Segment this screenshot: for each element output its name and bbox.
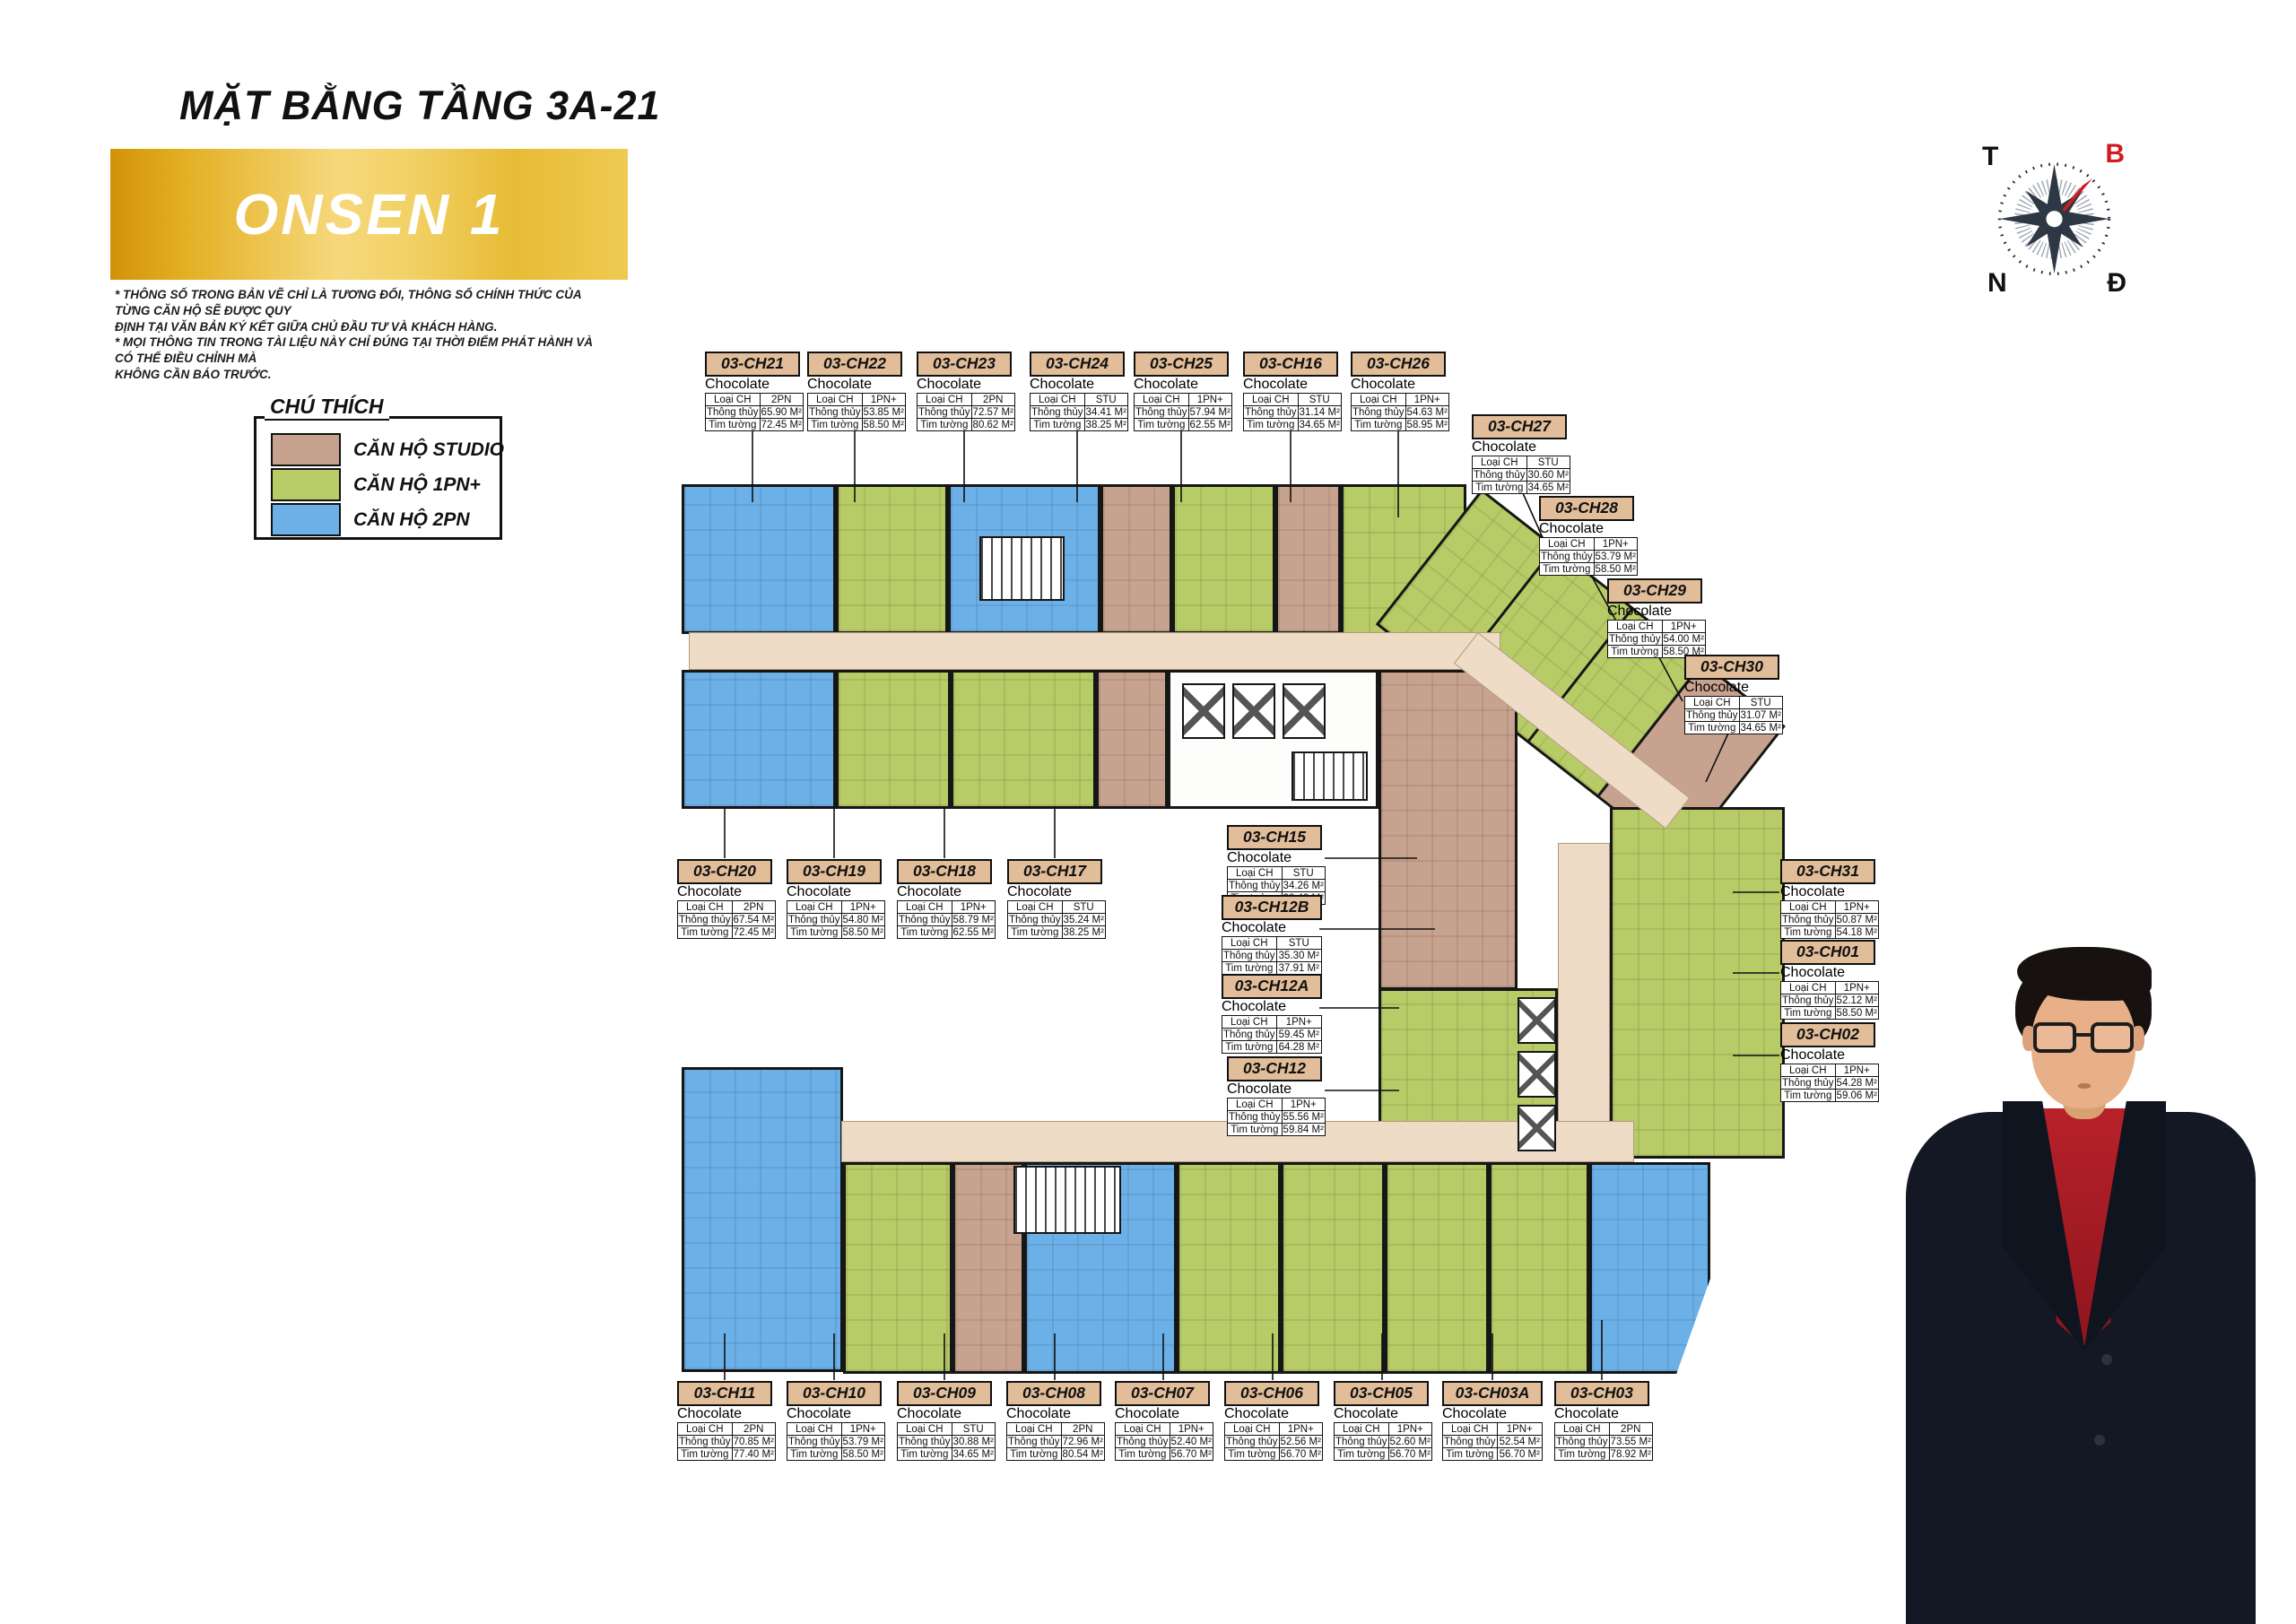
- unit-net-value: 52.56 M²: [1279, 1436, 1322, 1448]
- unit-type-label: Loại CH: [1222, 1016, 1277, 1029]
- unit-gross-value: 58.50 M²: [1594, 563, 1637, 576]
- unit-net-label: Thông thủy: [678, 914, 733, 926]
- unit-net-value: 52.12 M²: [1835, 994, 1878, 1007]
- unit-gross-label: Tim tường: [1608, 646, 1663, 658]
- unit-net-value: 54.28 M²: [1835, 1077, 1878, 1090]
- unit-gross-label: Tim tường: [1228, 1124, 1283, 1136]
- unit-code: 03-CH12A: [1222, 974, 1322, 999]
- unit-code: 03-CH28: [1539, 496, 1634, 521]
- unit-net-value: 72.96 M²: [1061, 1436, 1104, 1448]
- unit-net-value: 54.63 M²: [1405, 406, 1448, 419]
- unit-card-03-CH27: 03-CH27 Chocolate Loại CH STU Thông thủy…: [1472, 414, 1567, 494]
- unit-gross-value: 59.06 M²: [1835, 1090, 1878, 1102]
- unit-code: 03-CH10: [787, 1381, 882, 1406]
- unit-type-value: STU: [1282, 867, 1325, 880]
- unit-type-label: Loại CH: [1244, 394, 1299, 406]
- unit-card-03-CH03A: 03-CH03A Chocolate Loại CH 1PN+ Thông th…: [1442, 1381, 1543, 1461]
- unit-net-value: 53.79 M²: [1594, 551, 1637, 563]
- unit-card-03-CH24: 03-CH24 Chocolate Loại CH STU Thông thủy…: [1030, 352, 1125, 431]
- unit-gross-label: Tim tường: [1222, 962, 1277, 975]
- unit-gross-label: Tim tường: [918, 419, 972, 431]
- unit-info-table: Loại CH 1PN+ Thông thủy 54.63 M² Tim tườ…: [1351, 393, 1449, 431]
- unit-info-table: Loại CH 1PN+ Thông thủy 57.94 M² Tim tườ…: [1134, 393, 1232, 431]
- unit-net-label: Thông thủy: [1608, 633, 1663, 646]
- unit-gross-value: 62.55 M²: [952, 926, 995, 939]
- unit-code: 03-CH31: [1780, 859, 1875, 884]
- unit-net-label: Thông thủy: [808, 406, 863, 419]
- unit-net-value: 31.14 M²: [1298, 406, 1341, 419]
- unit-type-label: Loại CH: [1225, 1423, 1280, 1436]
- unit-net-value: 35.30 M²: [1276, 950, 1321, 962]
- unit-type-value: 1PN+: [1405, 394, 1448, 406]
- unit-net-value: 53.79 M²: [841, 1436, 884, 1448]
- unit-type-value: 1PN+: [1188, 394, 1231, 406]
- unit-info-table: Loại CH STU Thông thủy 35.24 M² Tim tườn…: [1007, 900, 1106, 939]
- unit-net-value: 73.55 M²: [1609, 1436, 1652, 1448]
- unit-info-table: Loại CH 1PN+ Thông thủy 59.45 M² Tim tườ…: [1222, 1015, 1322, 1054]
- unit-gross-label: Tim tường: [1555, 1448, 1610, 1461]
- unit-gross-value: 80.62 M²: [971, 419, 1014, 431]
- unit-gross-label: Tim tường: [1116, 1448, 1170, 1461]
- unit-gross-value: 56.70 M²: [1170, 1448, 1213, 1461]
- unit-card-03-CH29: 03-CH29 Chocolate Loại CH 1PN+ Thông thủ…: [1607, 578, 1702, 658]
- unit-type-label: Loại CH: [678, 901, 733, 914]
- unit-code: 03-CH21: [705, 352, 800, 377]
- unit-type-label: Loại CH: [1335, 1423, 1389, 1436]
- unit-card-03-CH08: 03-CH08 Chocolate Loại CH 2PN Thông thủy…: [1006, 1381, 1101, 1461]
- unit-gross-label: Tim tường: [1244, 419, 1299, 431]
- unit-code: 03-CH19: [787, 859, 882, 884]
- unit-gross-value: 34.65 M²: [1298, 419, 1341, 431]
- unit-card-03-CH06: 03-CH06 Chocolate Loại CH 1PN+ Thông thủ…: [1224, 1381, 1319, 1461]
- unit-card-03-CH23: 03-CH23 Chocolate Loại CH 2PN Thông thủy…: [917, 352, 1012, 431]
- unit-net-label: Thông thủy: [1008, 914, 1063, 926]
- unit-info-table: Loại CH 1PN+ Thông thủy 52.40 M² Tim tườ…: [1115, 1422, 1213, 1461]
- unit-net-label: Thông thủy: [1244, 406, 1299, 419]
- unit-type-label: Loại CH: [1685, 697, 1740, 709]
- unit-type-label: Loại CH: [898, 1423, 952, 1436]
- unit-type-value: 2PN: [760, 394, 803, 406]
- unit-gross-value: 37.91 M²: [1276, 962, 1321, 975]
- unit-gross-label: Tim tường: [1781, 926, 1836, 939]
- unit-code: 03-CH23: [917, 352, 1012, 377]
- unit-type-value: 1PN+: [862, 394, 905, 406]
- unit-net-label: Thông thủy: [706, 406, 761, 419]
- unit-code: 03-CH15: [1227, 825, 1322, 850]
- unit-info-table: Loại CH STU Thông thủy 30.88 M² Tim tườn…: [897, 1422, 996, 1461]
- unit-info-table: Loại CH 1PN+ Thông thủy 55.56 M² Tim tườ…: [1227, 1098, 1326, 1136]
- unit-type-label: Loại CH: [787, 901, 842, 914]
- unit-info-table: Loại CH STU Thông thủy 34.41 M² Tim tườn…: [1030, 393, 1128, 431]
- unit-type-label: Loại CH: [808, 394, 863, 406]
- unit-net-label: Thông thủy: [1781, 914, 1836, 926]
- unit-type-label: Loại CH: [1116, 1423, 1170, 1436]
- unit-net-label: Thông thủy: [1781, 1077, 1836, 1090]
- unit-type-value: STU: [1739, 697, 1782, 709]
- unit-type-label: Loại CH: [1228, 867, 1283, 880]
- unit-type-label: Loại CH: [1228, 1099, 1283, 1111]
- unit-gross-label: Tim tường: [1540, 563, 1595, 576]
- unit-type-label: Loại CH: [1222, 937, 1277, 950]
- unit-net-label: Thông thủy: [1473, 469, 1527, 482]
- unit-type-value: 1PN+: [1835, 982, 1878, 994]
- unit-info-table: Loại CH 2PN Thông thủy 72.96 M² Tim tườn…: [1006, 1422, 1105, 1461]
- unit-code: 03-CH27: [1472, 414, 1567, 439]
- unit-gross-label: Tim tường: [1135, 419, 1189, 431]
- unit-code: 03-CH22: [807, 352, 902, 377]
- unit-type-label: Loại CH: [1781, 982, 1836, 994]
- unit-net-value: 50.87 M²: [1835, 914, 1878, 926]
- unit-type-value: 2PN: [732, 1423, 775, 1436]
- unit-type-value: STU: [1062, 901, 1105, 914]
- unit-gross-value: 59.84 M²: [1282, 1124, 1325, 1136]
- unit-net-label: Thông thủy: [1116, 1436, 1170, 1448]
- unit-card-03-CH03: 03-CH03 Chocolate Loại CH 2PN Thông thủy…: [1554, 1381, 1649, 1461]
- unit-net-value: 53.85 M²: [862, 406, 905, 419]
- unit-type-label: Loại CH: [1555, 1423, 1610, 1436]
- unit-gross-label: Tim tường: [1685, 722, 1740, 734]
- unit-net-label: Thông thủy: [1225, 1436, 1280, 1448]
- unit-card-03-CH11: 03-CH11 Chocolate Loại CH 2PN Thông thủy…: [677, 1381, 772, 1461]
- unit-gross-value: 34.65 M²: [1526, 482, 1570, 494]
- unit-net-label: Thông thủy: [1228, 880, 1283, 892]
- unit-card-03-CH05: 03-CH05 Chocolate Loại CH 1PN+ Thông thủ…: [1334, 1381, 1429, 1461]
- unit-gross-label: Tim tường: [1007, 1448, 1062, 1461]
- unit-card-03-CH26: 03-CH26 Chocolate Loại CH 1PN+ Thông thủ…: [1351, 352, 1446, 431]
- unit-info-table: Loại CH 1PN+ Thông thủy 53.79 M² Tim tườ…: [787, 1422, 885, 1461]
- unit-code: 03-CH18: [897, 859, 992, 884]
- unit-type-label: Loại CH: [1781, 1064, 1836, 1077]
- unit-type-value: 1PN+: [841, 901, 884, 914]
- unit-gross-value: 58.50 M²: [841, 926, 884, 939]
- unit-gross-label: Tim tường: [898, 1448, 952, 1461]
- unit-type-value: STU: [952, 1423, 995, 1436]
- unit-net-label: Thông thủy: [1540, 551, 1595, 563]
- unit-net-label: Thông thủy: [918, 406, 972, 419]
- unit-info-table: Loại CH 1PN+ Thông thủy 54.00 M² Tim tườ…: [1607, 620, 1706, 658]
- unit-card-03-CH16: 03-CH16 Chocolate Loại CH STU Thông thủy…: [1243, 352, 1338, 431]
- unit-card-03-CH17: 03-CH17 Chocolate Loại CH STU Thông thủy…: [1007, 859, 1102, 939]
- unit-net-label: Thông thủy: [1222, 1029, 1277, 1041]
- unit-card-03-CH12B: 03-CH12B Chocolate Loại CH STU Thông thủ…: [1222, 895, 1322, 975]
- unit-type-value: 1PN+: [1282, 1099, 1325, 1111]
- unit-type-value: 1PN+: [841, 1423, 884, 1436]
- unit-card-03-CH12: 03-CH12 Chocolate Loại CH 1PN+ Thông thủ…: [1227, 1056, 1322, 1136]
- unit-card-03-CH30: 03-CH30 Chocolate Loại CH STU Thông thủy…: [1684, 655, 1779, 734]
- unit-type-label: Loại CH: [1031, 394, 1085, 406]
- unit-gross-value: 77.40 M²: [732, 1448, 775, 1461]
- unit-card-03-CH01: 03-CH01 Chocolate Loại CH 1PN+ Thông thủ…: [1780, 940, 1875, 1020]
- unit-gross-value: 62.55 M²: [1188, 419, 1231, 431]
- unit-code: 03-CH17: [1007, 859, 1102, 884]
- unit-code: 03-CH16: [1243, 352, 1338, 377]
- unit-gross-value: 58.50 M²: [862, 419, 905, 431]
- unit-card-03-CH07: 03-CH07 Chocolate Loại CH 1PN+ Thông thủ…: [1115, 1381, 1210, 1461]
- unit-type-value: STU: [1084, 394, 1127, 406]
- unit-info-table: Loại CH 2PN Thông thủy 67.54 M² Tim tườn…: [677, 900, 776, 939]
- unit-net-label: Thông thủy: [1031, 406, 1085, 419]
- unit-gross-value: 56.70 M²: [1279, 1448, 1322, 1461]
- unit-net-value: 59.45 M²: [1276, 1029, 1321, 1041]
- unit-net-value: 52.60 M²: [1388, 1436, 1431, 1448]
- unit-info-table: Loại CH 1PN+ Thông thủy 53.85 M² Tim tườ…: [807, 393, 906, 431]
- unit-type-value: 1PN+: [1497, 1423, 1542, 1436]
- unit-gross-label: Tim tường: [1225, 1448, 1280, 1461]
- unit-code: 03-CH09: [897, 1381, 992, 1406]
- unit-net-value: 67.54 M²: [732, 914, 775, 926]
- unit-net-value: 54.80 M²: [841, 914, 884, 926]
- unit-type-label: Loại CH: [1473, 456, 1527, 469]
- unit-code: 03-CH07: [1115, 1381, 1210, 1406]
- unit-code: 03-CH03A: [1442, 1381, 1543, 1406]
- unit-gross-label: Tim tường: [1781, 1007, 1836, 1020]
- unit-card-03-CH22: 03-CH22 Chocolate Loại CH 1PN+ Thông thủ…: [807, 352, 902, 431]
- unit-info-table: Loại CH 1PN+ Thông thủy 50.87 M² Tim tườ…: [1780, 900, 1879, 939]
- unit-type-label: Loại CH: [1443, 1423, 1498, 1436]
- unit-info-table: Loại CH STU Thông thủy 31.14 M² Tim tườn…: [1243, 393, 1342, 431]
- unit-code: 03-CH12: [1227, 1056, 1322, 1081]
- unit-gross-label: Tim tường: [706, 419, 761, 431]
- unit-card-03-CH02: 03-CH02 Chocolate Loại CH 1PN+ Thông thủ…: [1780, 1022, 1875, 1102]
- unit-type-value: 1PN+: [1662, 621, 1705, 633]
- unit-gross-label: Tim tường: [1781, 1090, 1836, 1102]
- unit-net-label: Thông thủy: [1135, 406, 1189, 419]
- unit-card-03-CH28: 03-CH28 Chocolate Loại CH 1PN+ Thông thủ…: [1539, 496, 1634, 576]
- unit-type-value: 2PN: [1609, 1423, 1652, 1436]
- unit-info-table: Loại CH 1PN+ Thông thủy 53.79 M² Tim tườ…: [1539, 537, 1638, 576]
- unit-card-03-CH10: 03-CH10 Chocolate Loại CH 1PN+ Thông thủ…: [787, 1381, 882, 1461]
- unit-net-value: 70.85 M²: [732, 1436, 775, 1448]
- unit-info-table: Loại CH 1PN+ Thông thủy 52.60 M² Tim tườ…: [1334, 1422, 1432, 1461]
- unit-gross-label: Tim tường: [787, 926, 842, 939]
- unit-type-label: Loại CH: [1540, 538, 1595, 551]
- unit-code: 03-CH26: [1351, 352, 1446, 377]
- unit-type-value: 1PN+: [1835, 901, 1878, 914]
- unit-code: 03-CH29: [1607, 578, 1702, 604]
- unit-code: 03-CH24: [1030, 352, 1125, 377]
- unit-info-table: Loại CH 1PN+ Thông thủy 52.12 M² Tim tườ…: [1780, 981, 1879, 1020]
- unit-card-03-CH31: 03-CH31 Chocolate Loại CH 1PN+ Thông thủ…: [1780, 859, 1875, 939]
- unit-gross-value: 38.25 M²: [1062, 926, 1105, 939]
- unit-card-03-CH20: 03-CH20 Chocolate Loại CH 2PN Thông thủy…: [677, 859, 772, 939]
- unit-gross-value: 58.50 M²: [1835, 1007, 1878, 1020]
- unit-net-value: 31.07 M²: [1739, 709, 1782, 722]
- unit-code: 03-CH06: [1224, 1381, 1319, 1406]
- unit-net-value: 30.60 M²: [1526, 469, 1570, 482]
- unit-card-03-CH21: 03-CH21 Chocolate Loại CH 2PN Thông thủy…: [705, 352, 800, 431]
- unit-net-label: Thông thủy: [1335, 1436, 1389, 1448]
- unit-card-03-CH19: 03-CH19 Chocolate Loại CH 1PN+ Thông thủ…: [787, 859, 882, 939]
- unit-gross-value: 80.54 M²: [1061, 1448, 1104, 1461]
- unit-info-table: Loại CH STU Thông thủy 30.60 M² Tim tườn…: [1472, 456, 1570, 494]
- unit-net-value: 72.57 M²: [971, 406, 1014, 419]
- unit-net-value: 35.24 M²: [1062, 914, 1105, 926]
- unit-type-value: 1PN+: [1279, 1423, 1322, 1436]
- unit-card-03-CH25: 03-CH25 Chocolate Loại CH 1PN+ Thông thủ…: [1134, 352, 1229, 431]
- unit-net-label: Thông thủy: [1352, 406, 1406, 419]
- unit-gross-value: 56.70 M²: [1497, 1448, 1542, 1461]
- unit-type-value: 1PN+: [1170, 1423, 1213, 1436]
- unit-gross-label: Tim tường: [898, 926, 952, 939]
- unit-type-label: Loại CH: [898, 901, 952, 914]
- unit-info-table: Loại CH 2PN Thông thủy 70.85 M² Tim tườn…: [677, 1422, 776, 1461]
- unit-net-label: Thông thủy: [1555, 1436, 1610, 1448]
- unit-gross-label: Tim tường: [678, 1448, 733, 1461]
- unit-gross-value: 64.28 M²: [1276, 1041, 1321, 1054]
- unit-type-label: Loại CH: [1781, 901, 1836, 914]
- unit-gross-value: 54.18 M²: [1835, 926, 1878, 939]
- unit-card-03-CH18: 03-CH18 Chocolate Loại CH 1PN+ Thông thủ…: [897, 859, 992, 939]
- unit-gross-label: Tim tường: [808, 419, 863, 431]
- unit-gross-value: 34.65 M²: [1739, 722, 1782, 734]
- unit-net-label: Thông thủy: [678, 1436, 733, 1448]
- unit-card-03-CH12A: 03-CH12A Chocolate Loại CH 1PN+ Thông th…: [1222, 974, 1322, 1054]
- unit-gross-label: Tim tường: [678, 926, 733, 939]
- unit-type-label: Loại CH: [918, 394, 972, 406]
- unit-card-03-CH15: 03-CH15 Chocolate Loại CH STU Thông thủy…: [1227, 825, 1322, 905]
- unit-type-value: 2PN: [971, 394, 1014, 406]
- unit-info-table: Loại CH 1PN+ Thông thủy 58.79 M² Tim tườ…: [897, 900, 996, 939]
- unit-code: 03-CH01: [1780, 940, 1875, 965]
- unit-type-value: 1PN+: [1276, 1016, 1321, 1029]
- unit-code: 03-CH05: [1334, 1381, 1429, 1406]
- unit-gross-label: Tim tường: [1008, 926, 1063, 939]
- unit-net-label: Thông thủy: [1007, 1436, 1062, 1448]
- unit-net-value: 54.00 M²: [1662, 633, 1705, 646]
- unit-code: 03-CH30: [1684, 655, 1779, 680]
- unit-net-value: 52.54 M²: [1497, 1436, 1542, 1448]
- unit-net-label: Thông thủy: [1443, 1436, 1498, 1448]
- unit-code: 03-CH11: [677, 1381, 772, 1406]
- unit-gross-label: Tim tường: [1222, 1041, 1277, 1054]
- unit-card-03-CH09: 03-CH09 Chocolate Loại CH STU Thông thủy…: [897, 1381, 992, 1461]
- unit-gross-value: 38.25 M²: [1084, 419, 1127, 431]
- unit-type-label: Loại CH: [706, 394, 761, 406]
- unit-type-label: Loại CH: [1608, 621, 1663, 633]
- unit-net-value: 65.90 M²: [760, 406, 803, 419]
- unit-gross-label: Tim tường: [1352, 419, 1406, 431]
- unit-gross-label: Tim tường: [787, 1448, 842, 1461]
- unit-gross-value: 58.50 M²: [841, 1448, 884, 1461]
- unit-gross-value: 56.70 M²: [1388, 1448, 1431, 1461]
- unit-type-value: 1PN+: [1835, 1064, 1878, 1077]
- unit-info-table: Loại CH 1PN+ Thông thủy 54.80 M² Tim tườ…: [787, 900, 885, 939]
- unit-type-value: STU: [1298, 394, 1341, 406]
- unit-code: 03-CH02: [1780, 1022, 1875, 1047]
- unit-info-table: Loại CH 2PN Thông thủy 73.55 M² Tim tườn…: [1554, 1422, 1653, 1461]
- unit-gross-value: 58.95 M²: [1405, 419, 1448, 431]
- unit-info-table: Loại CH STU Thông thủy 35.30 M² Tim tườn…: [1222, 936, 1322, 975]
- unit-net-value: 30.88 M²: [952, 1436, 995, 1448]
- unit-code: 03-CH12B: [1222, 895, 1322, 920]
- unit-type-label: Loại CH: [678, 1423, 733, 1436]
- unit-net-label: Thông thủy: [1228, 1111, 1283, 1124]
- unit-type-value: 1PN+: [1388, 1423, 1431, 1436]
- unit-info-table: Loại CH 2PN Thông thủy 65.90 M² Tim tườn…: [705, 393, 804, 431]
- unit-type-value: STU: [1276, 937, 1321, 950]
- unit-gross-value: 78.92 M²: [1609, 1448, 1652, 1461]
- unit-gross-label: Tim tường: [1031, 419, 1085, 431]
- unit-gross-label: Tim tường: [1473, 482, 1527, 494]
- unit-gross-value: 34.65 M²: [952, 1448, 995, 1461]
- unit-code: 03-CH08: [1006, 1381, 1101, 1406]
- unit-type-value: 2PN: [1061, 1423, 1104, 1436]
- unit-net-value: 58.79 M²: [952, 914, 995, 926]
- unit-gross-value: 72.45 M²: [732, 926, 775, 939]
- unit-net-label: Thông thủy: [898, 914, 952, 926]
- unit-type-label: Loại CH: [1007, 1423, 1062, 1436]
- unit-net-label: Thông thủy: [898, 1436, 952, 1448]
- unit-type-label: Loại CH: [787, 1423, 842, 1436]
- unit-type-label: Loại CH: [1008, 901, 1063, 914]
- unit-net-value: 34.26 M²: [1282, 880, 1325, 892]
- unit-type-value: 2PN: [732, 901, 775, 914]
- unit-type-value: 1PN+: [952, 901, 995, 914]
- unit-code: 03-CH25: [1134, 352, 1229, 377]
- unit-net-value: 55.56 M²: [1282, 1111, 1325, 1124]
- unit-type-value: STU: [1526, 456, 1570, 469]
- flyer-page: { "header": { "title": "MẶT BẰNG TẦNG 3A…: [0, 0, 2296, 1624]
- unit-net-value: 52.40 M²: [1170, 1436, 1213, 1448]
- unit-type-value: 1PN+: [1594, 538, 1637, 551]
- unit-info-table: Loại CH 1PN+ Thông thủy 52.54 M² Tim tườ…: [1442, 1422, 1543, 1461]
- unit-net-label: Thông thủy: [787, 914, 842, 926]
- unit-info-table: Loại CH STU Thông thủy 31.07 M² Tim tườn…: [1684, 696, 1783, 734]
- unit-type-label: Loại CH: [1352, 394, 1406, 406]
- unit-net-value: 34.41 M²: [1084, 406, 1127, 419]
- unit-code: 03-CH03: [1554, 1381, 1649, 1406]
- unit-info-table: Loại CH 2PN Thông thủy 72.57 M² Tim tườn…: [917, 393, 1015, 431]
- unit-code: 03-CH20: [677, 859, 772, 884]
- unit-net-value: 57.94 M²: [1188, 406, 1231, 419]
- unit-net-label: Thông thủy: [1685, 709, 1740, 722]
- unit-info-table: Loại CH 1PN+ Thông thủy 54.28 M² Tim tườ…: [1780, 1064, 1879, 1102]
- unit-net-label: Thông thủy: [787, 1436, 842, 1448]
- unit-net-label: Thông thủy: [1222, 950, 1277, 962]
- unit-gross-label: Tim tường: [1443, 1448, 1498, 1461]
- unit-gross-value: 72.45 M²: [760, 419, 803, 431]
- unit-net-label: Thông thủy: [1781, 994, 1836, 1007]
- unit-gross-label: Tim tường: [1335, 1448, 1389, 1461]
- unit-type-label: Loại CH: [1135, 394, 1189, 406]
- unit-info-table: Loại CH 1PN+ Thông thủy 52.56 M² Tim tườ…: [1224, 1422, 1323, 1461]
